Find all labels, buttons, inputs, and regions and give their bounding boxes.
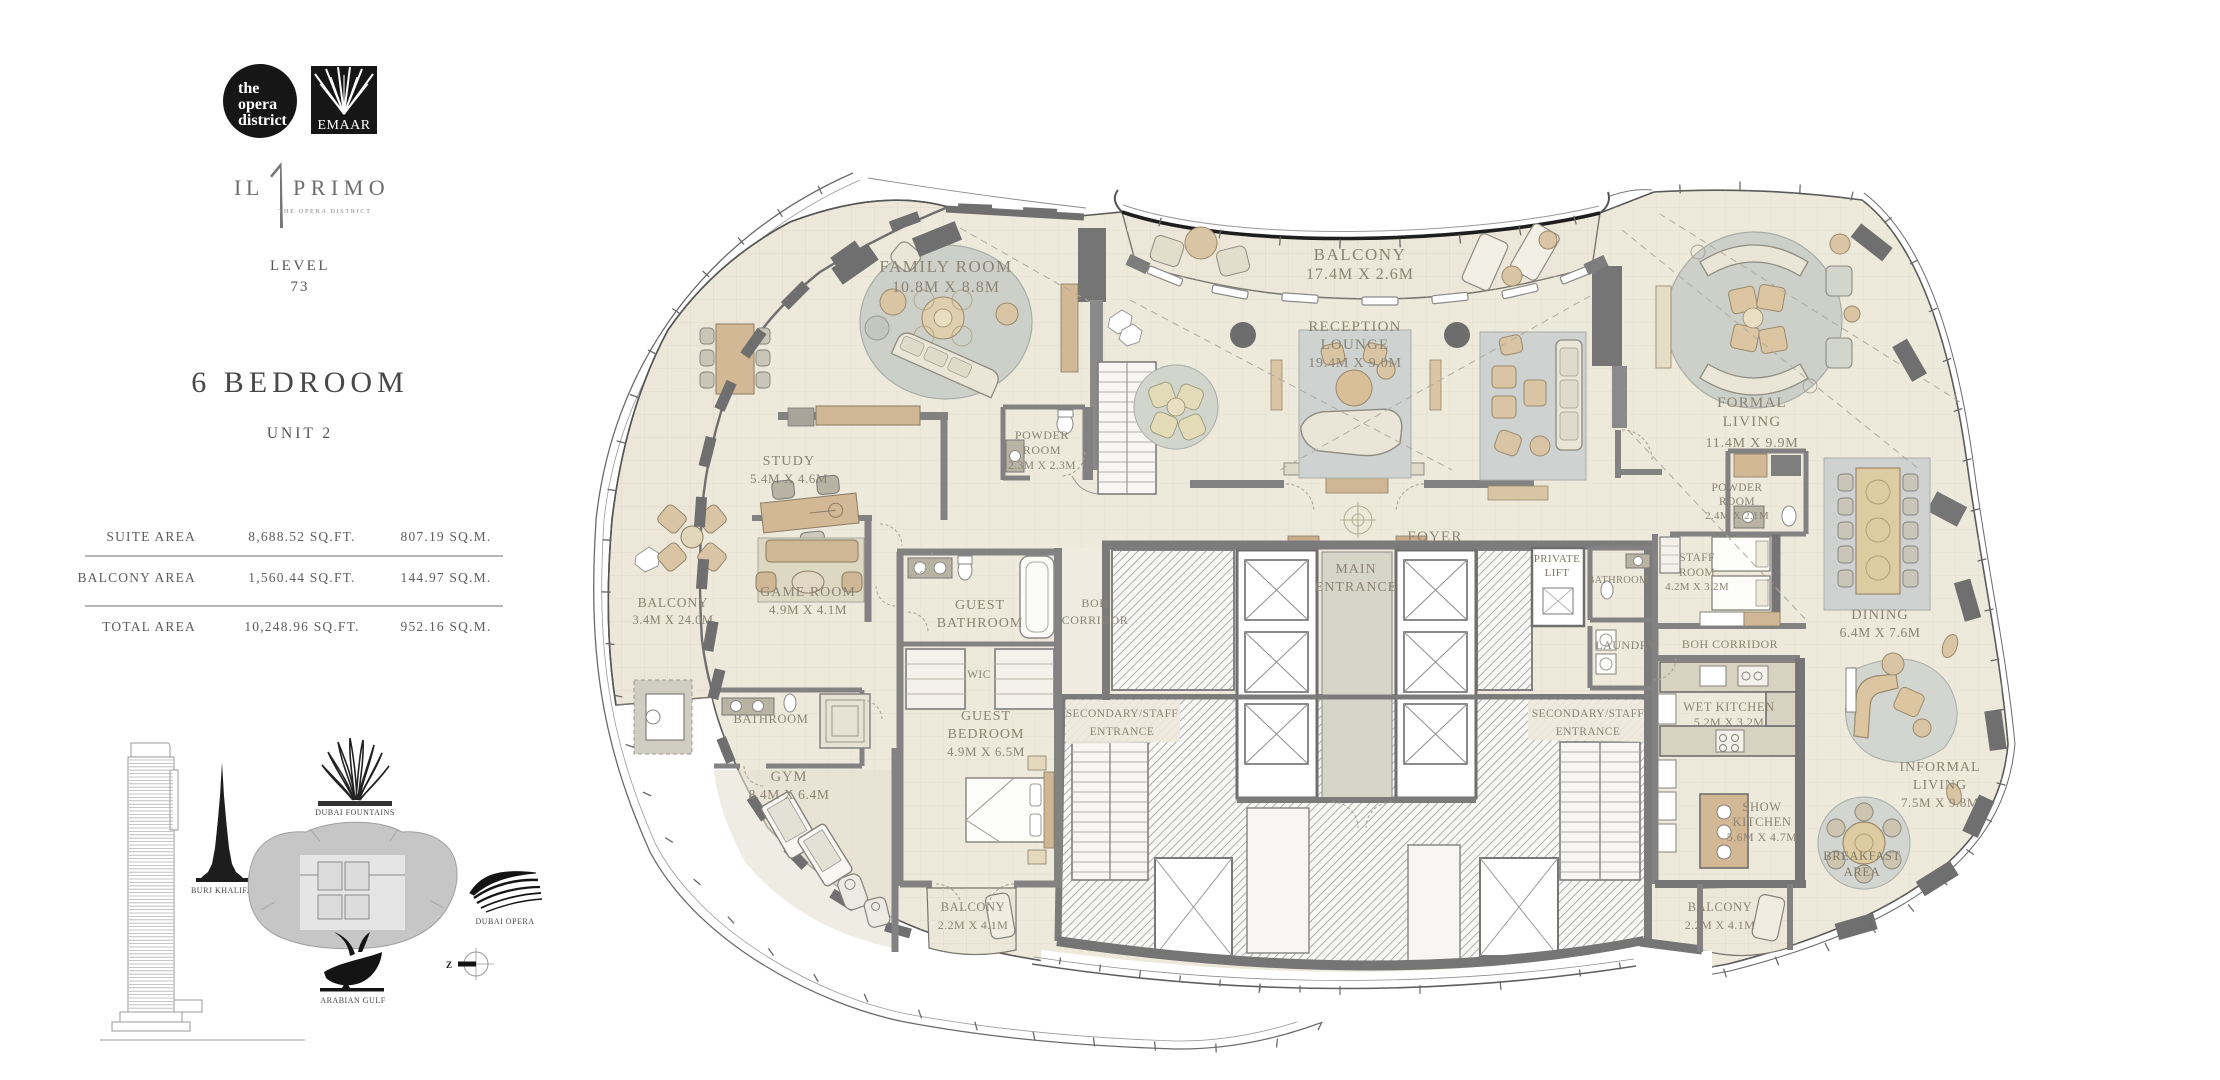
svg-text:ROOM: ROOM (1719, 496, 1755, 508)
svg-text:2.3M X 2.3M: 2.3M X 2.3M (1008, 460, 1076, 472)
svg-text:FOYER: FOYER (1407, 529, 1462, 545)
svg-text:10.8M X 8.8M: 10.8M X 8.8M (892, 279, 1000, 296)
svg-text:RECEPTION: RECEPTION (1308, 319, 1401, 335)
svg-text:BREAKFAST: BREAKFAST (1823, 849, 1900, 863)
svg-text:INFORMAL: INFORMAL (1899, 760, 1980, 775)
svg-text:4.9M X 6.5M: 4.9M X 6.5M (947, 744, 1025, 759)
svg-text:LIVING: LIVING (1723, 414, 1782, 430)
svg-text:ENTRANCE: ENTRANCE (1556, 726, 1621, 738)
svg-text:BALCONY: BALCONY (638, 595, 709, 610)
svg-text:LOUNGE: LOUNGE (1321, 337, 1390, 353)
svg-text:BOH CORRIDOR: BOH CORRIDOR (1682, 637, 1778, 651)
svg-text:GUEST: GUEST (955, 598, 1005, 613)
svg-text:DINING: DINING (1851, 607, 1909, 623)
svg-text:ROOM: ROOM (1679, 567, 1715, 579)
svg-text:STUDY: STUDY (763, 454, 816, 469)
svg-text:LEVEL: LEVEL (270, 258, 330, 274)
svg-text:the: the (238, 80, 259, 97)
svg-text:district: district (238, 112, 288, 129)
svg-text:BATHROOM: BATHROOM (734, 712, 809, 726)
svg-text:DUBAI OPERA: DUBAI OPERA (475, 917, 534, 926)
svg-text:FORMAL: FORMAL (1717, 395, 1787, 411)
svg-text:LIVING: LIVING (1913, 778, 1967, 793)
svg-text:SECONDARY/STAFF: SECONDARY/STAFF (1066, 708, 1178, 720)
svg-text:SHOW: SHOW (1742, 800, 1781, 814)
svg-text:ROOM: ROOM (1023, 443, 1061, 457)
svg-text:SECONDARY/STAFF: SECONDARY/STAFF (1532, 708, 1644, 720)
svg-text:6.4M X 7.6M: 6.4M X 7.6M (1840, 625, 1921, 640)
svg-text:BEDROOM: BEDROOM (947, 727, 1024, 742)
svg-text:PRIMO: PRIMO (293, 175, 390, 200)
svg-text:1,560.44 SQ.FT.: 1,560.44 SQ.FT. (248, 570, 355, 585)
svg-text:6 BEDROOM: 6 BEDROOM (191, 366, 409, 399)
svg-text:SUITE AREA: SUITE AREA (106, 529, 196, 544)
svg-text:ARABIAN GULF: ARABIAN GULF (320, 996, 385, 1005)
svg-text:GAME ROOM: GAME ROOM (760, 585, 856, 600)
svg-text:17.4M X 2.6M: 17.4M X 2.6M (1306, 266, 1414, 283)
svg-text:CORRIDOR: CORRIDOR (1062, 613, 1129, 627)
svg-text:BATHROOM: BATHROOM (937, 616, 1024, 631)
svg-text:PRIVATE: PRIVATE (1534, 553, 1581, 565)
svg-text:5.2M X 3.2M: 5.2M X 3.2M (1694, 715, 1764, 729)
svg-text:7.5M X 9.8M: 7.5M X 9.8M (1901, 795, 1979, 810)
svg-text:BALCONY AREA: BALCONY AREA (77, 570, 196, 585)
svg-text:STAFF: STAFF (1679, 552, 1715, 564)
svg-text:BALCONY: BALCONY (1688, 900, 1753, 914)
svg-text:4.9M X 4.1M: 4.9M X 4.1M (769, 602, 847, 617)
svg-text:GUEST: GUEST (961, 709, 1011, 724)
svg-text:TOTAL AREA: TOTAL AREA (102, 619, 196, 634)
svg-text:POWDER: POWDER (1015, 428, 1069, 442)
svg-text:5.6M X 4.7M: 5.6M X 4.7M (1727, 830, 1797, 844)
svg-text:LAUNDRY: LAUNDRY (1595, 638, 1657, 652)
svg-text:DUBAI FOUNTAINS: DUBAI FOUNTAINS (315, 808, 395, 817)
svg-text:KITCHEN: KITCHEN (1732, 815, 1791, 829)
svg-text:144.97 SQ.M.: 144.97 SQ.M. (401, 570, 492, 585)
svg-text:8.4M X 6.4M: 8.4M X 6.4M (749, 787, 830, 802)
svg-text:10,248.96 SQ.FT.: 10,248.96 SQ.FT. (244, 619, 359, 634)
svg-text:POWDER: POWDER (1712, 482, 1763, 494)
svg-text:EMAAR: EMAAR (317, 118, 370, 133)
svg-text:807.19 SQ.M.: 807.19 SQ.M. (401, 529, 492, 544)
svg-text:LIFT: LIFT (1545, 567, 1570, 579)
svg-text:8,688.52 SQ.FT.: 8,688.52 SQ.FT. (248, 529, 355, 544)
svg-text:GYM: GYM (771, 769, 808, 785)
svg-text:11.4M X 9.9M: 11.4M X 9.9M (1705, 436, 1798, 451)
svg-text:ENTRANCE: ENTRANCE (1090, 726, 1155, 738)
svg-text:5.4M X 4.6M: 5.4M X 4.6M (750, 471, 828, 486)
svg-text:THE OPERA DISTRICT: THE OPERA DISTRICT (278, 208, 371, 215)
svg-text:952.16 SQ.M.: 952.16 SQ.M. (401, 619, 492, 634)
svg-text:AREA: AREA (1844, 865, 1880, 879)
svg-text:opera: opera (238, 96, 277, 113)
svg-text:2.4M X 2.1M: 2.4M X 2.1M (1705, 510, 1769, 522)
svg-text:BALCONY: BALCONY (1314, 245, 1407, 264)
svg-text:BOH: BOH (1081, 596, 1108, 610)
svg-text:MAIN: MAIN (1335, 562, 1376, 577)
svg-text:ENTRANCE: ENTRANCE (1315, 580, 1398, 595)
svg-text:2.2M X 4.1M: 2.2M X 4.1M (938, 918, 1008, 932)
svg-text:19.4M X 9.0M: 19.4M X 9.0M (1308, 356, 1402, 371)
svg-text:WIC: WIC (967, 669, 991, 681)
svg-text:BALCONY: BALCONY (941, 900, 1006, 914)
svg-text:IL: IL (234, 175, 264, 200)
svg-text:2.2M X 4.1M: 2.2M X 4.1M (1685, 918, 1755, 932)
svg-text:73: 73 (291, 279, 310, 295)
svg-text:BATHROOM: BATHROOM (1587, 575, 1649, 586)
svg-text:3.4M X 24.0M: 3.4M X 24.0M (632, 613, 713, 627)
svg-text:4.2M X 3.2M: 4.2M X 3.2M (1665, 581, 1729, 593)
svg-text:WET KITCHEN: WET KITCHEN (1683, 700, 1774, 714)
svg-text:UNIT 2: UNIT 2 (267, 425, 333, 442)
svg-text:Z: Z (446, 960, 452, 970)
svg-text:BURJ KHALIFA: BURJ KHALIFA (191, 886, 253, 895)
svg-text:FAMILY ROOM: FAMILY ROOM (879, 257, 1012, 276)
